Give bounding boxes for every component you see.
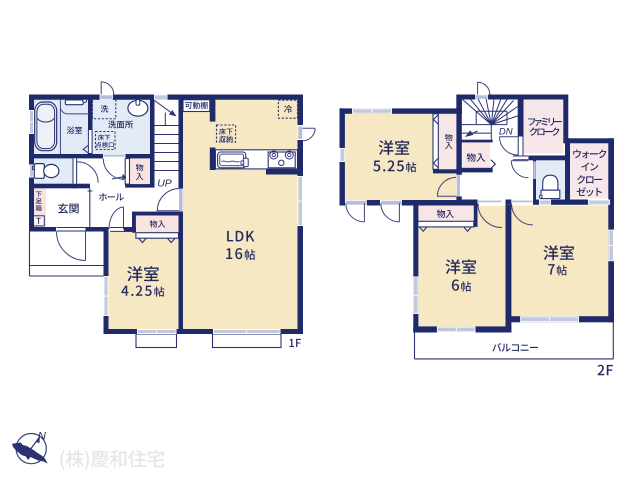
svg-text:DN: DN xyxy=(499,126,513,137)
svg-text:N: N xyxy=(38,431,46,443)
svg-text:UP: UP xyxy=(157,178,172,190)
